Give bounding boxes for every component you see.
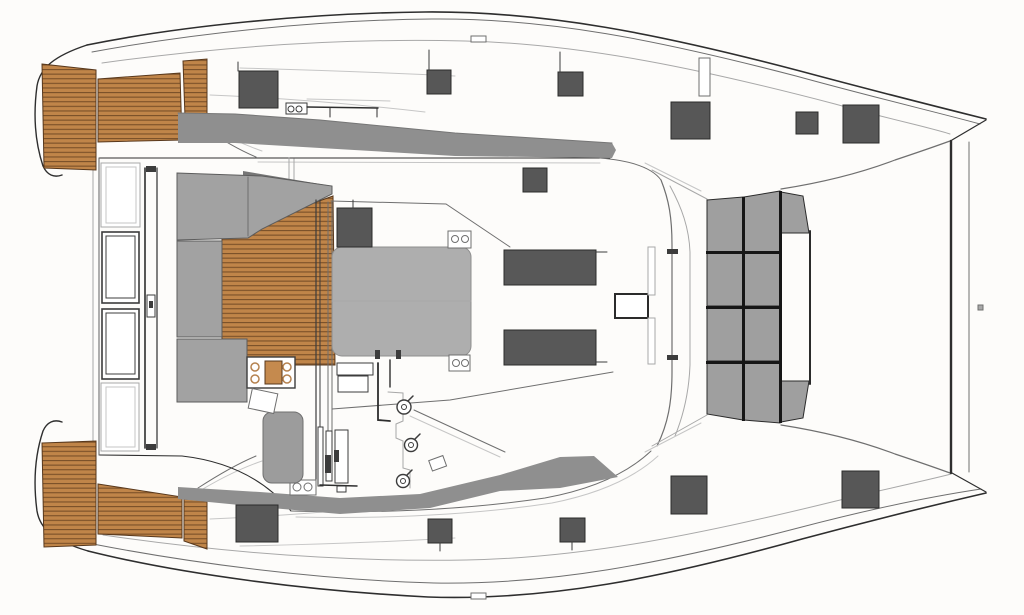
swim-platform-starboard — [42, 441, 96, 547]
deck-hatch — [428, 519, 452, 543]
track-handle — [149, 301, 153, 308]
galley-counter — [337, 363, 373, 375]
deck-hatch — [427, 70, 451, 94]
trampoline-panel — [707, 308, 743, 361]
wall-fitting — [667, 249, 678, 254]
deck-hatch — [239, 71, 278, 108]
cockpit-sofa — [177, 339, 247, 402]
wall-fitting — [667, 355, 678, 360]
trampoline-panel — [707, 197, 743, 252]
helm-step-edge — [320, 485, 357, 486]
helm-instrument — [325, 455, 331, 473]
salon-bench — [504, 250, 596, 285]
trampoline-panel — [744, 308, 780, 361]
deck-hatch — [796, 112, 818, 134]
galley-counter — [338, 376, 368, 392]
side-step-starboard — [184, 499, 207, 549]
winch — [405, 439, 418, 452]
deck-plan-drawing — [0, 0, 1024, 615]
winch — [397, 400, 411, 414]
deck-hatch — [558, 72, 583, 96]
deck-hatch — [560, 518, 585, 542]
deck-hatch — [843, 105, 879, 143]
bowsprit-marker — [978, 305, 983, 310]
mooring-cleat — [471, 36, 486, 42]
bar-stool — [283, 375, 291, 383]
settee-hinge — [375, 350, 380, 359]
helm-seat — [263, 412, 303, 483]
cockpit-sofa — [177, 241, 222, 337]
foredeck-locker-door — [615, 294, 648, 318]
deck-hatch — [337, 208, 372, 247]
bar-stool — [251, 375, 259, 383]
transom-locker — [102, 309, 139, 379]
swim-platform-port — [42, 64, 96, 170]
deck-hatch — [671, 476, 707, 514]
trampoline-lacing — [779, 191, 782, 423]
window-mullion — [648, 247, 655, 295]
deck-fitting — [699, 58, 710, 96]
transom-locker — [101, 383, 139, 451]
trampoline-panel — [744, 363, 780, 423]
track-cap — [146, 444, 156, 450]
cockpit-table-top — [265, 361, 282, 384]
settee-hinge — [396, 350, 401, 359]
helm-instrument — [334, 450, 339, 462]
deck-hatch — [671, 102, 710, 139]
window-mullion — [648, 318, 655, 364]
mooring-cleat — [471, 593, 486, 599]
helm-console — [337, 486, 346, 492]
trampoline-panel — [707, 253, 743, 306]
swim-platform-port — [98, 73, 182, 142]
trampoline-panel — [744, 253, 780, 306]
transom-locker — [101, 163, 140, 227]
cockpit-grab-rail — [307, 107, 378, 108]
trampoline-panel — [707, 363, 743, 420]
bar-stool — [283, 363, 291, 371]
catamaran-deck-plan — [0, 0, 1024, 615]
trampoline-lacing — [742, 197, 745, 421]
transom-locker — [102, 232, 139, 303]
trampoline-panel — [744, 191, 780, 252]
winch — [397, 475, 410, 488]
deck-hatch — [236, 505, 278, 542]
bar-stool — [251, 363, 259, 371]
salon-bench — [504, 330, 596, 365]
deck-hatch — [523, 168, 547, 192]
track-cap — [146, 166, 156, 172]
deck-hatch — [842, 471, 879, 508]
side-step-port — [183, 59, 207, 117]
helm-console — [318, 427, 323, 486]
